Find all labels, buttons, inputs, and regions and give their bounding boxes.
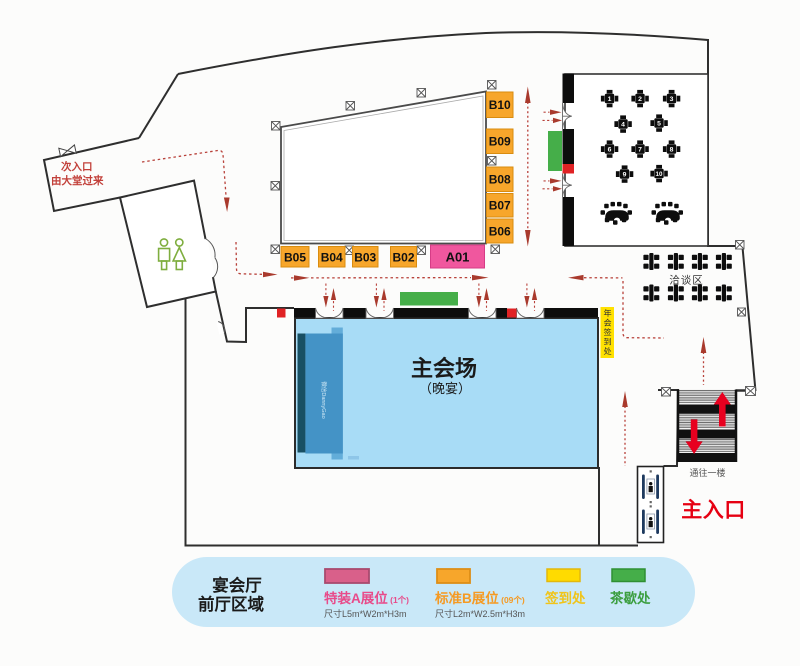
svg-text:5: 5 (657, 120, 661, 127)
svg-text:1: 1 (608, 96, 612, 103)
svg-text:（晚宴）: （晚宴） (419, 381, 471, 396)
svg-text:7: 7 (638, 146, 642, 153)
svg-text:通往一楼: 通往一楼 (689, 467, 725, 478)
svg-text:4: 4 (621, 121, 625, 128)
svg-text:B03: B03 (354, 251, 376, 265)
svg-text:8: 8 (670, 146, 674, 153)
svg-text:A01: A01 (446, 250, 470, 265)
svg-text:尺寸L5m*W2m*H3m: 尺寸L5m*W2m*H3m (324, 608, 407, 619)
svg-text:B10: B10 (489, 98, 511, 112)
svg-text:B06: B06 (489, 225, 511, 239)
svg-text:10: 10 (656, 171, 663, 178)
svg-text:B04: B04 (321, 251, 343, 265)
svg-text:茶歇处: 茶歇处 (609, 590, 651, 606)
svg-text:次入口: 次入口 (61, 160, 93, 173)
svg-text:主入口: 主入口 (681, 499, 746, 522)
svg-text:洽谈区: 洽谈区 (669, 274, 704, 287)
svg-text:9: 9 (623, 171, 627, 178)
svg-text:主会场: 主会场 (411, 356, 477, 381)
svg-text:6: 6 (608, 146, 612, 153)
svg-text:B07: B07 (489, 199, 511, 213)
svg-text:B09: B09 (489, 135, 511, 149)
svg-text:由大堂过来: 由大堂过来 (51, 174, 104, 187)
svg-text:B05: B05 (284, 251, 306, 265)
svg-text:2: 2 (638, 96, 642, 103)
svg-text:签到处: 签到处 (544, 590, 586, 606)
svg-text:微信DannyGao: 微信DannyGao (320, 381, 328, 418)
svg-text:3: 3 (670, 96, 674, 103)
svg-text:前厅区域: 前厅区域 (198, 594, 265, 614)
svg-text:宴会厅: 宴会厅 (212, 575, 262, 595)
svg-text:尺寸L2m*W2.5m*H3m: 尺寸L2m*W2.5m*H3m (435, 608, 525, 619)
svg-text:B02: B02 (392, 251, 414, 265)
svg-text:B08: B08 (489, 173, 511, 187)
svg-text:年会签到处: 年会签到处 (603, 308, 611, 356)
